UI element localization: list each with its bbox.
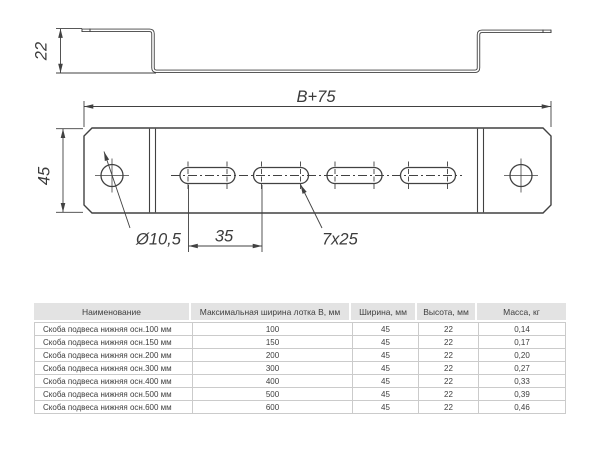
value-cell: 45: [352, 323, 418, 335]
table-row: Скоба подвеса нижняя осн.400 мм40045220,…: [34, 375, 566, 388]
value-cell: 0,20: [478, 349, 566, 361]
product-name-cell: Скоба подвеса нижняя осн.400 мм: [34, 375, 192, 387]
front-height-dim-label: 45: [36, 166, 54, 185]
value-cell: 600: [192, 401, 352, 413]
callout-hole-diameter: Ø10,5: [104, 152, 182, 249]
value-cell: 150: [192, 336, 352, 348]
callout-slot-size: 7x25: [301, 185, 359, 249]
value-cell: 22: [418, 401, 478, 413]
product-name-cell: Скоба подвеса нижняя осн.500 мм: [34, 388, 192, 400]
column-header-max-width: Максимальная ширина лотка В, мм: [191, 303, 349, 320]
slot-pitch-dim-label: 35: [215, 228, 234, 246]
front-view: B+75 45 35 Ø10,5 7x25: [36, 88, 552, 252]
slot-size-label: 7x25: [322, 231, 359, 249]
table-row: Скоба подвеса нижняя осн.100 мм10045220,…: [34, 323, 566, 336]
value-cell: 0,33: [478, 375, 566, 387]
table-row: Скоба подвеса нижняя осн.300 мм30045220,…: [34, 362, 566, 375]
hole-dim-label: Ø10,5: [135, 231, 182, 249]
value-cell: 0,27: [478, 362, 566, 374]
value-cell: 300: [192, 362, 352, 374]
value-cell: 400: [192, 375, 352, 387]
bracket-outline: [84, 128, 551, 213]
value-cell: 0,17: [478, 336, 566, 348]
profile-inner-gap: [82, 30, 551, 71]
value-cell: 200: [192, 349, 352, 361]
value-cell: 45: [352, 349, 418, 361]
dimension-35: 35: [189, 185, 263, 252]
fold-lines: [150, 129, 484, 213]
column-header-name: Наименование: [34, 303, 189, 320]
dimension-22: 22: [33, 29, 157, 73]
column-header-width: Ширина, мм: [351, 303, 415, 320]
table-row: Скоба подвеса нижняя осн.600 мм60045220,…: [34, 401, 566, 414]
table-row: Скоба подвеса нижняя осн.200 мм20045220,…: [34, 349, 566, 362]
value-cell: 45: [352, 336, 418, 348]
table-row: Скоба подвеса нижняя осн.500 мм50045220,…: [34, 388, 566, 401]
value-cell: 0,14: [478, 323, 566, 335]
value-cell: 45: [352, 362, 418, 374]
value-cell: 100: [192, 323, 352, 335]
value-cell: 0,46: [478, 401, 566, 413]
value-cell: 45: [352, 401, 418, 413]
column-header-mass: Масса, кг: [477, 303, 566, 320]
spec-table: Наименование Максимальная ширина лотка В…: [34, 303, 566, 414]
value-cell: 22: [418, 323, 478, 335]
value-cell: 45: [352, 375, 418, 387]
value-cell: 0,39: [478, 388, 566, 400]
technical-drawing: 22: [0, 0, 600, 300]
value-cell: 22: [418, 375, 478, 387]
value-cell: 500: [192, 388, 352, 400]
value-cell: 22: [418, 388, 478, 400]
product-name-cell: Скоба подвеса нижняя осн.150 мм: [34, 336, 192, 348]
side-view: 22: [33, 29, 552, 73]
side-height-dim-label: 22: [33, 42, 51, 61]
dimension-45: 45: [36, 129, 84, 213]
product-name-cell: Скоба подвеса нижняя осн.100 мм: [34, 323, 192, 335]
spec-table-header: Наименование Максимальная ширина лотка В…: [34, 303, 566, 320]
value-cell: 45: [352, 388, 418, 400]
front-width-dim-label: B+75: [297, 88, 337, 106]
table-row: Скоба подвеса нижняя осн.150 мм15045220,…: [34, 336, 566, 349]
value-cell: 22: [418, 362, 478, 374]
spec-table-body: Скоба подвеса нижняя осн.100 мм10045220,…: [34, 322, 566, 414]
product-name-cell: Скоба подвеса нижняя осн.600 мм: [34, 401, 192, 413]
product-name-cell: Скоба подвеса нижняя осн.300 мм: [34, 362, 192, 374]
product-name-cell: Скоба подвеса нижняя осн.200 мм: [34, 349, 192, 361]
column-header-height: Высота, мм: [417, 303, 475, 320]
dimension-width-b75: B+75: [84, 88, 551, 127]
value-cell: 22: [418, 349, 478, 361]
value-cell: 22: [418, 336, 478, 348]
round-hole-right: [504, 159, 538, 193]
